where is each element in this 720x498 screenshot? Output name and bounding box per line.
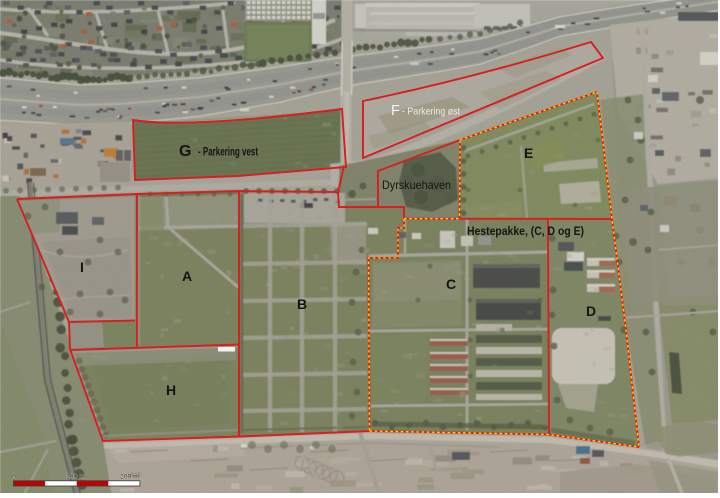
svg-text:G: G	[179, 143, 191, 160]
svg-text:E: E	[524, 145, 533, 161]
svg-text:- Parkering vest: - Parkering vest	[198, 147, 258, 159]
svg-text:100 m: 100 m	[66, 473, 85, 480]
svg-text:B: B	[297, 296, 307, 312]
svg-text:I: I	[80, 259, 84, 275]
svg-text:C: C	[446, 276, 456, 292]
svg-text:H: H	[166, 382, 176, 398]
svg-text:Hestepakke, (C, D og E): Hestepakke, (C, D og E)	[467, 224, 584, 238]
svg-text:0: 0	[12, 473, 16, 480]
svg-text:A: A	[182, 268, 192, 284]
svg-text:D: D	[586, 303, 596, 319]
svg-text:200 m: 200 m	[120, 473, 139, 480]
svg-text:- Parkering øst: - Parkering øst	[402, 106, 460, 118]
svg-text:Dyrskuehaven: Dyrskuehaven	[382, 178, 451, 192]
svg-text:F: F	[391, 103, 400, 119]
